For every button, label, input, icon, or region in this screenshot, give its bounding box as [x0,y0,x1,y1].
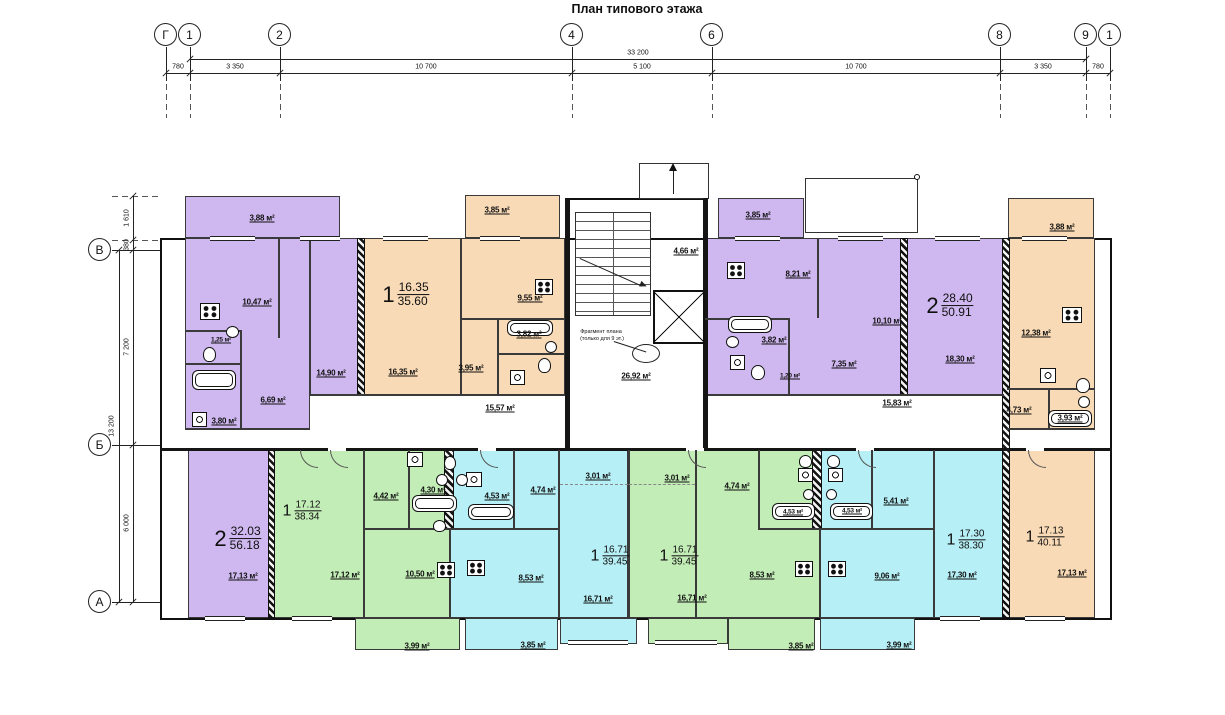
washer-icon [510,370,525,385]
wall [185,428,310,430]
toilet-icon [1076,378,1090,393]
stove-icon [1062,307,1082,323]
stove-icon [200,303,220,320]
area-label: 4,74 м² [531,486,556,495]
corridor-wall [310,394,565,396]
window [935,236,980,241]
area-label: 15,83 м² [882,399,911,408]
partition [788,318,790,395]
area-label: 4,53 м² [485,492,510,501]
balcony-room [465,195,560,238]
bathtub-icon [728,316,772,333]
apartment-rooms-count: 1 [947,531,956,549]
bathtub-icon [412,495,457,512]
toilet-icon [799,455,812,468]
area-label: 3,01 м² [665,474,690,483]
area-label: 18,30 м² [945,355,974,364]
partition [760,528,820,530]
apartment-living-area: 28.40 [942,292,974,306]
window [383,236,428,241]
axis-bubble-1: 1 [178,23,201,46]
axis-bubble-g: Г [154,23,177,46]
washer-icon [828,468,843,482]
apartment-living-area: 16.71 [602,544,629,556]
sink-icon [1078,396,1090,408]
area-label: 3,80 м² [212,417,237,426]
area-label: 8,53 м² [750,571,775,580]
stove-icon [727,262,745,279]
axis-stem [166,47,167,81]
area-label: 6,69 м² [261,396,286,405]
dim-seg: 780 [1090,64,1106,71]
area-label: 10,10 м² [872,317,901,326]
axis-stem [1086,47,1087,81]
partition [558,450,560,618]
area-label: 12,38 м² [1021,329,1050,338]
dim-seg-left: 1 610 [124,207,131,229]
axis-bubble-8: 8 [988,23,1011,46]
area-label: 3,85 м² [521,641,546,650]
axis-stem [190,47,191,81]
axis-bubble-2: 2 [268,23,291,46]
window [210,236,255,241]
area-label: 3,85 м² [789,642,814,651]
toilet-icon [433,520,446,532]
window [735,236,780,241]
bathtub-icon [468,504,514,520]
apartment-total-area: 40.11 [1037,538,1064,549]
dim-seg: 10 700 [413,64,438,71]
area-label: 10,50 м² [405,570,434,579]
apartment-label: 2 28.4050.91 [926,292,973,320]
toilet-icon [444,456,456,470]
axis-stem [712,47,713,81]
apartment-living-area: 16.35 [398,281,430,295]
area-label: 3,99 м² [887,641,912,650]
axis-line [1086,84,1087,118]
apartment-zone [628,450,820,618]
partition [363,450,365,618]
washer-icon [730,355,745,370]
sink-icon [726,336,739,348]
washer-icon [192,412,207,427]
area-label: 15,57 м² [485,404,514,413]
apartment-zone [272,450,450,618]
apartment-zone [185,238,310,430]
axis-line [190,84,191,118]
apartment-rooms-count: 1 [660,547,669,565]
roof-canopy [805,178,918,233]
dim-total-top: 33 200 [625,50,650,57]
apartment-label: 1 16.7139.45 [591,544,630,567]
dim-seg: 3 350 [224,64,246,71]
partition [278,238,280,338]
apartment-total-area: 56.18 [230,540,262,553]
partition [820,528,935,530]
axis-bubble-4: 4 [560,23,583,46]
area-label: 3,01 м² [586,472,611,481]
corridor-wall [708,394,1004,396]
stove-icon [795,561,813,577]
area-label: 7,35 м² [832,360,857,369]
washer-icon [1040,368,1056,383]
apartment-rooms-count: 1 [382,282,394,308]
axis-bubble-9: 9 [1074,23,1097,46]
elevator-shaft [653,290,705,344]
fragment-note-line1: Фрагмент плана [580,329,622,335]
dim-seg-left: 6 000 [124,512,131,534]
dim-line-left-total [119,250,120,602]
window [205,616,245,621]
apartment-total-area: 38.30 [958,541,985,552]
axis-line [112,240,160,241]
axis-bubble-1r: 1 [1098,23,1121,46]
window [568,640,628,645]
sink-icon [803,489,814,500]
partition [817,238,819,318]
area-label: 3,82 м² [762,336,787,345]
partition [497,353,565,355]
apartment-label: 1 17.1238.34 [283,499,322,522]
partition [933,450,935,618]
dim-total-left: 13 200 [109,413,116,438]
area-label: 3,88 м² [250,214,275,223]
apartment-label: 1 16.3535.60 [382,281,429,309]
floor-plan-canvas: План типового этажа Г 1 2 4 6 8 9 1 33 2… [0,0,1225,715]
area-label: 9,06 м² [875,572,900,581]
sink-icon [436,474,448,486]
balcony-room [1008,198,1094,238]
partition [497,318,499,395]
dim-seg-left: 380 [124,237,131,253]
area-label: 14,90 м² [316,369,345,378]
apartment-total-area: 35.60 [398,296,430,309]
window [292,616,332,621]
window [655,640,717,645]
staircase [575,212,651,316]
dim-line-left [133,196,134,602]
toilet-icon [827,455,840,468]
sink-icon [826,489,837,500]
window [1025,616,1065,621]
partition [240,330,242,430]
window [480,236,520,241]
axis-stem [1000,47,1001,81]
drawing-title: План типового этажа [572,2,703,16]
axis-line [1000,84,1001,118]
area-label: 17,13 м² [1057,569,1086,578]
partition [185,363,240,365]
area-label: 4,74 м² [725,482,750,491]
apartment-label: 1 17.3038.30 [947,528,986,551]
apartment-total-area: 38.34 [294,512,321,523]
area-label: 10,47 м² [242,298,271,307]
area-label: 17,13 м² [228,572,257,581]
window [1022,236,1067,241]
area-label: 16,35 м² [388,368,417,377]
partition [513,450,515,530]
apartment-rooms-count: 2 [214,526,226,552]
stove-icon [437,562,455,578]
area-label: 3,95 м² [459,364,484,373]
area-label: 5,41 м² [884,497,909,506]
stove-icon [467,560,485,576]
axis-bubble-6: 6 [700,23,723,46]
axis-stem [572,47,573,81]
toilet-icon [751,365,765,380]
area-label: 3,82 м² [517,330,542,339]
window [838,236,883,241]
apartment-rooms-count: 1 [283,502,292,520]
axis-line [1110,84,1111,118]
area-label: 16,71 м² [583,595,612,604]
area-label: 4,53 м² [842,508,862,515]
area-label: 4,66 м² [674,247,699,256]
axis-stem [280,47,281,81]
axis-line [280,84,281,118]
apartment-rooms-count: 1 [1026,528,1035,546]
apartment-living-area: 17.12 [294,499,321,511]
wall [1007,428,1095,430]
apartment-label: 1 16.7139.45 [660,544,699,567]
dim-seg-left: 7 200 [124,336,131,358]
partition [450,528,560,530]
area-label: 16,71 м² [677,594,706,603]
area-label: 4,73 м² [1007,406,1032,415]
washer-icon [466,472,482,487]
area-label: 8,53 м² [519,574,544,583]
area-label: 1,20 м² [780,373,800,380]
area-label: 4,53 м² [783,509,803,516]
area-label: 26,92 м² [621,372,650,381]
partition [758,450,760,530]
toilet-icon [203,347,216,362]
area-label: 3,93 м² [1058,414,1083,423]
canopy-drain-circle [914,174,920,180]
stair-wall [565,198,570,450]
window [300,236,340,241]
entrance-arrow [673,170,674,194]
area-label: 8,21 м² [786,270,811,279]
apartment-label: 1 17.1340.11 [1026,525,1065,548]
area-label: 4,42 м² [374,492,399,501]
partition [628,450,630,618]
sink-icon [456,474,468,486]
area-label: 3,85 м² [485,206,510,215]
apartment-rooms-count: 2 [926,293,938,319]
apartment-total-area: 39.45 [602,557,629,568]
axis-line [572,84,573,118]
washer-icon [798,468,813,482]
bathtub-icon [192,370,236,390]
area-label: 17,30 м² [947,571,976,580]
toilet-icon [538,358,551,373]
axis-bubble-a: А [88,590,111,613]
shaft-wall [812,450,822,530]
apartment-rooms-count: 1 [591,547,600,565]
dim-seg: 10 700 [843,64,868,71]
sink-icon [545,341,557,353]
apartment-total-area: 50.91 [942,307,974,320]
apartment-living-area: 32.03 [230,525,262,539]
apartment-label: 2 32.0356.18 [214,525,261,553]
party-wall [357,238,365,395]
window [940,616,980,621]
apartment-living-area: 16.71 [671,544,698,556]
apartment-living-area: 17.13 [1037,525,1064,537]
dim-seg: 3 350 [1032,64,1054,71]
area-label: 1,25 м² [211,337,231,344]
dim-seg: 5 100 [631,64,653,71]
area-label: 17,12 м² [330,571,359,580]
dim-line-total [190,59,1086,60]
balcony-dashed-line [560,484,628,485]
entrance-arrow-head [669,163,677,171]
party-wall [268,450,275,618]
balcony-dashed-line [629,484,695,485]
axis-bubble-v: В [88,238,111,261]
area-label: 3,85 м² [746,211,771,220]
area-label: 3,88 м² [1050,223,1075,232]
dim-seg: 780 [170,64,186,71]
fragment-marker-ellipse [632,344,660,363]
area-label: 9,55 м² [518,294,543,303]
area-label: 4,30 м² [421,486,446,495]
axis-line [112,196,160,197]
area-label: 3,99 м² [405,642,430,651]
washer-icon [407,452,423,467]
axis-stem [1110,47,1111,81]
apartment-total-area: 39.45 [671,557,698,568]
axis-line [712,84,713,118]
apartment-living-area: 17.30 [958,528,985,540]
stove-icon [828,561,846,577]
axis-line [166,84,167,118]
dim-line-segments [166,73,1110,74]
